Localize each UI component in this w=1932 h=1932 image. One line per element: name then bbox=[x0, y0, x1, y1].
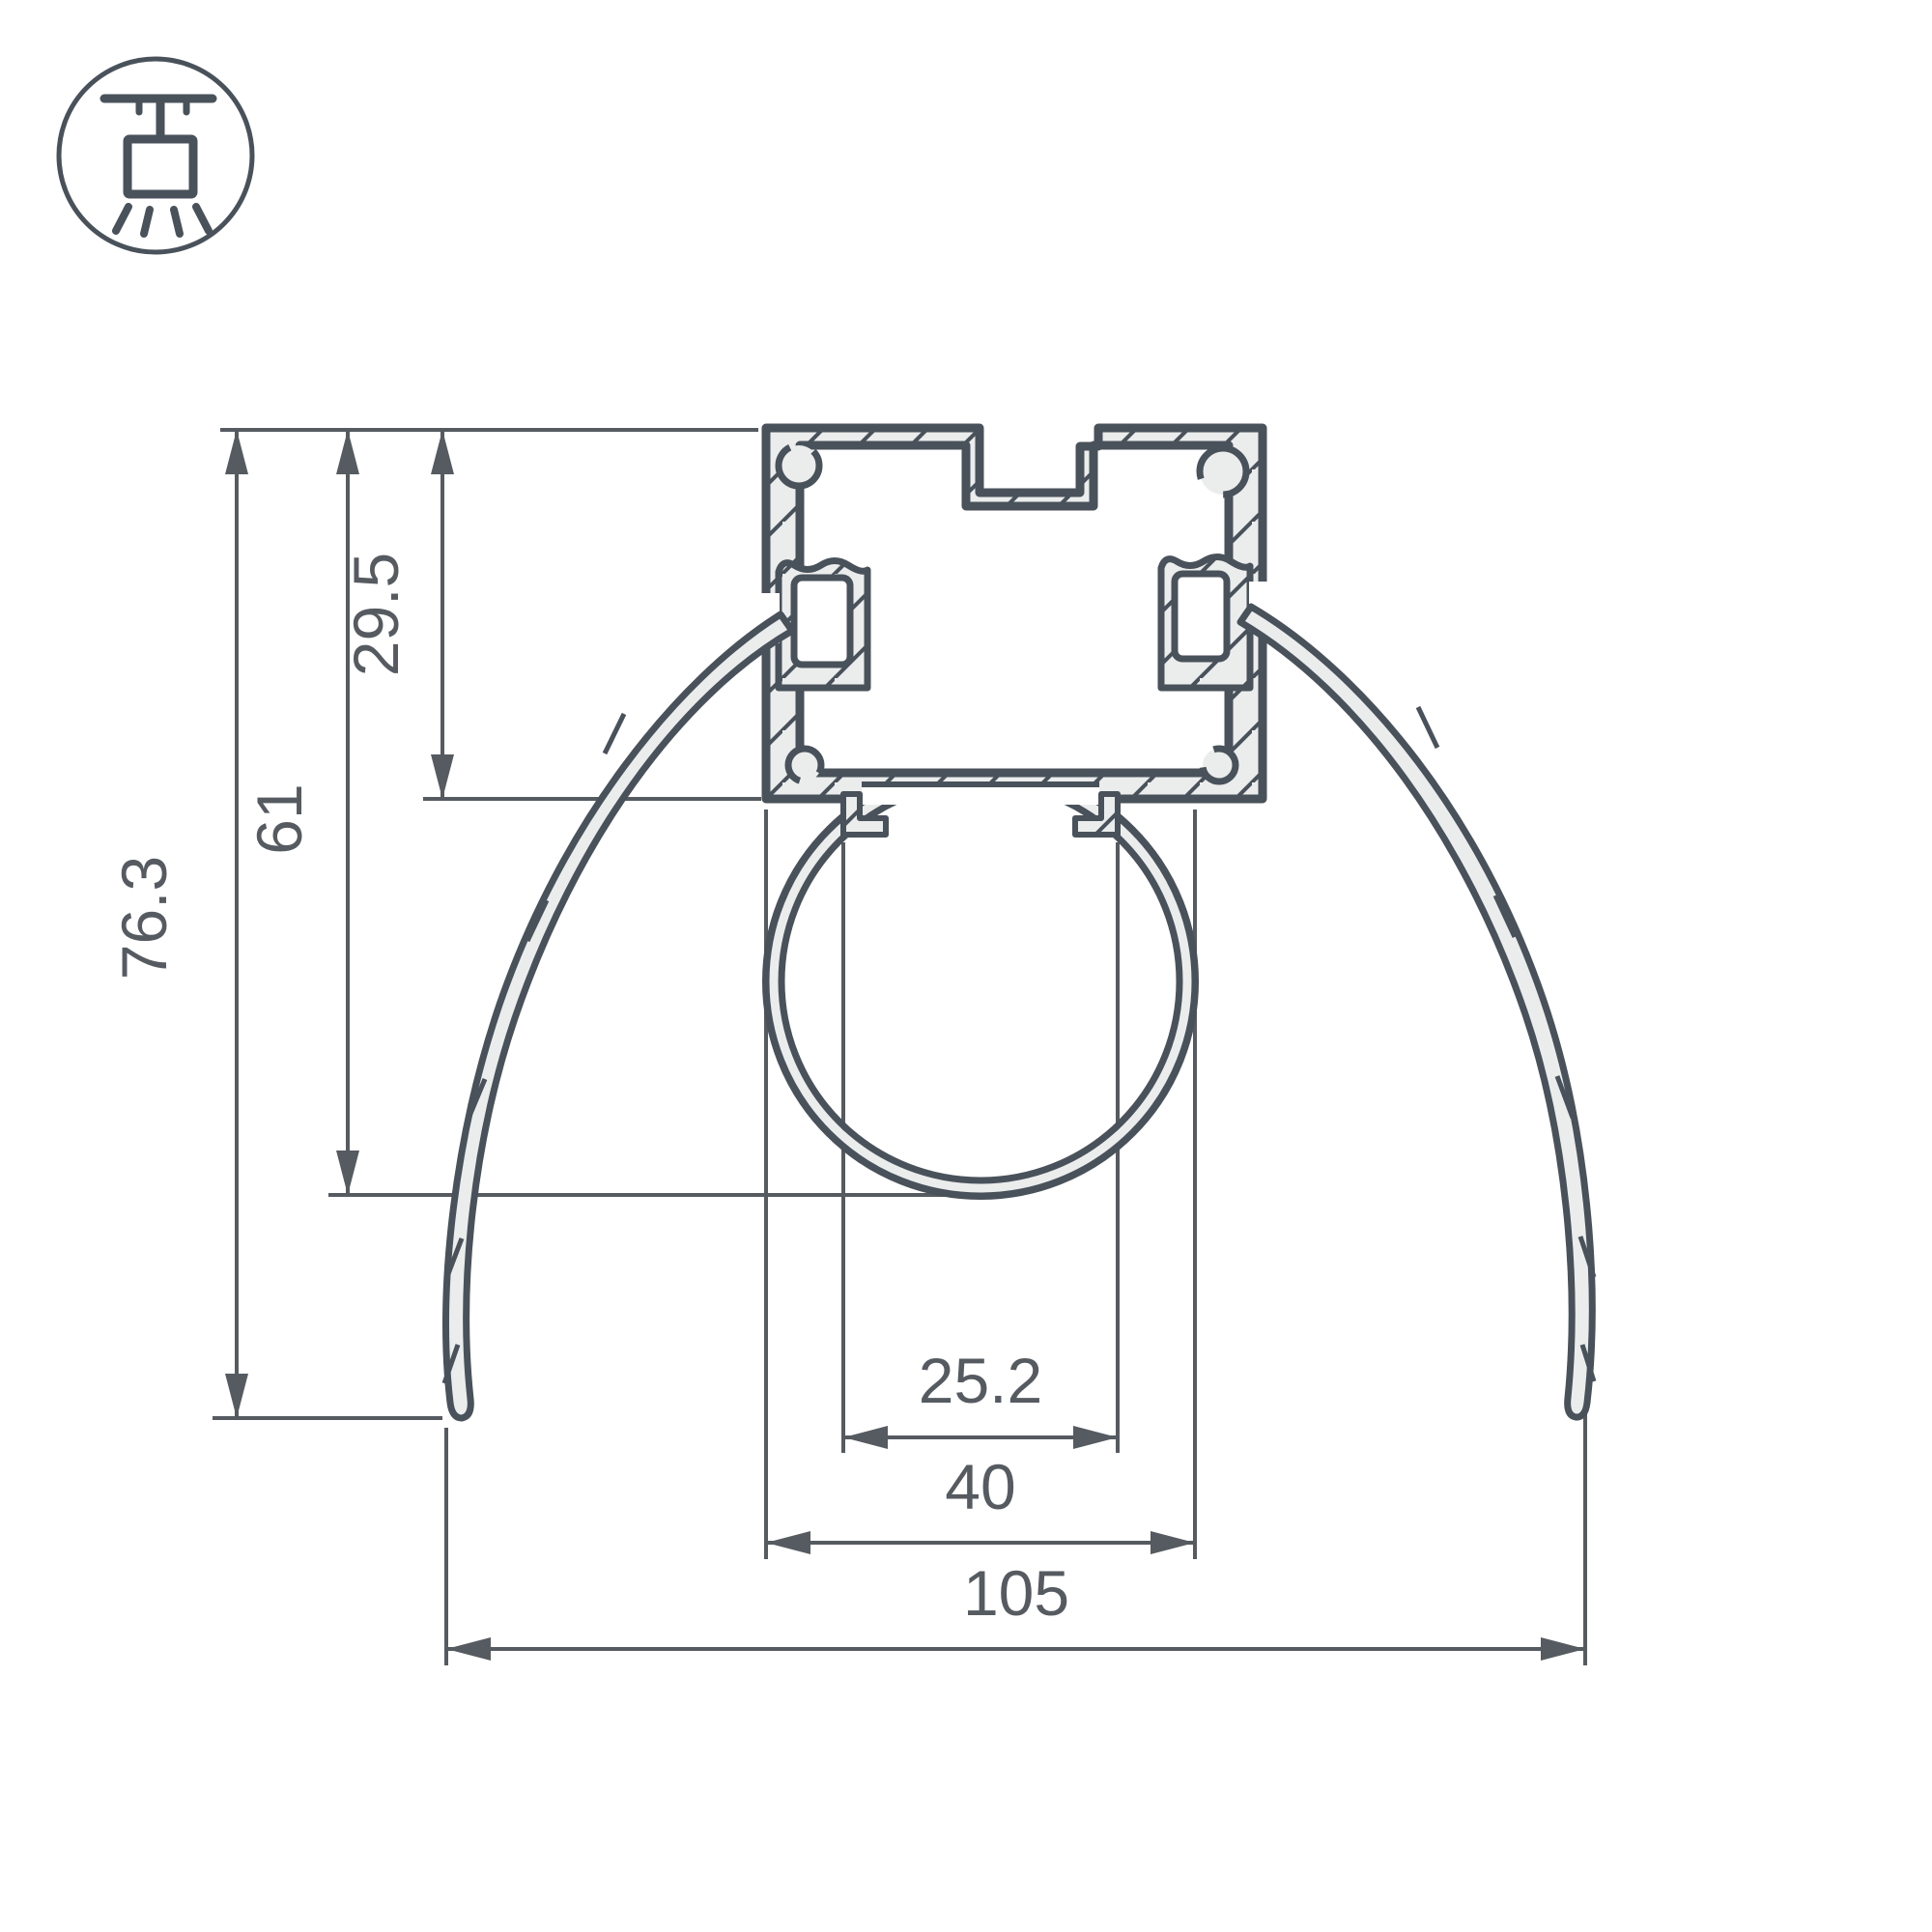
technical-drawing-canvas: 76.3 61 29.5 25.2 bbox=[0, 0, 1932, 1932]
screw-boss-top-left bbox=[779, 445, 819, 486]
arrow-left-icon bbox=[843, 1426, 888, 1449]
screw-boss-bottom-left bbox=[788, 749, 821, 781]
arrow-down-icon bbox=[336, 1151, 359, 1195]
arrow-up-icon bbox=[431, 430, 454, 474]
dim-label-width-tube-clip: 25.2 bbox=[919, 1345, 1042, 1416]
dim-label-height-to-tube-bottom: 61 bbox=[243, 783, 315, 854]
tube-inner-wall bbox=[781, 782, 1179, 1180]
arrow-right-icon bbox=[1541, 1637, 1585, 1661]
dimension-height-body: 29.5 bbox=[340, 430, 761, 799]
tube-outer-wall bbox=[766, 767, 1195, 1196]
arrow-right-icon bbox=[1073, 1426, 1118, 1449]
arrow-down-icon bbox=[431, 754, 454, 799]
arrow-left-icon bbox=[766, 1531, 810, 1554]
arrow-up-icon bbox=[225, 430, 248, 474]
dim-label-width-overall: 105 bbox=[963, 1557, 1069, 1629]
diffuser-tube bbox=[766, 767, 1195, 1196]
dimension-width-tube-clip: 25.2 bbox=[843, 842, 1118, 1453]
tube-wall-body bbox=[774, 775, 1187, 1188]
wing-right bbox=[1240, 607, 1594, 1417]
arrow-left-icon bbox=[446, 1637, 491, 1661]
dim-label-height-body: 29.5 bbox=[340, 553, 412, 676]
dim-label-height-overall: 76.3 bbox=[108, 856, 180, 980]
lamp-box bbox=[128, 139, 193, 194]
screw-boss-top-right bbox=[1200, 448, 1246, 495]
arrow-right-icon bbox=[1151, 1531, 1195, 1554]
drawing-page: 76.3 61 29.5 25.2 bbox=[0, 0, 1932, 1932]
arrow-down-icon bbox=[225, 1374, 248, 1418]
wings bbox=[444, 607, 1594, 1418]
arrow-up-icon bbox=[336, 430, 359, 474]
screw-boss-bottom-right bbox=[1203, 749, 1236, 781]
dim-label-width-tube: 40 bbox=[945, 1451, 1015, 1522]
profile-body bbox=[758, 428, 1270, 835]
wing-pockets bbox=[779, 557, 1250, 689]
wing-pocket-right bbox=[1161, 557, 1250, 689]
mounting-icon bbox=[59, 59, 252, 252]
wing-pocket-left bbox=[779, 561, 867, 689]
wing-left bbox=[444, 614, 792, 1418]
